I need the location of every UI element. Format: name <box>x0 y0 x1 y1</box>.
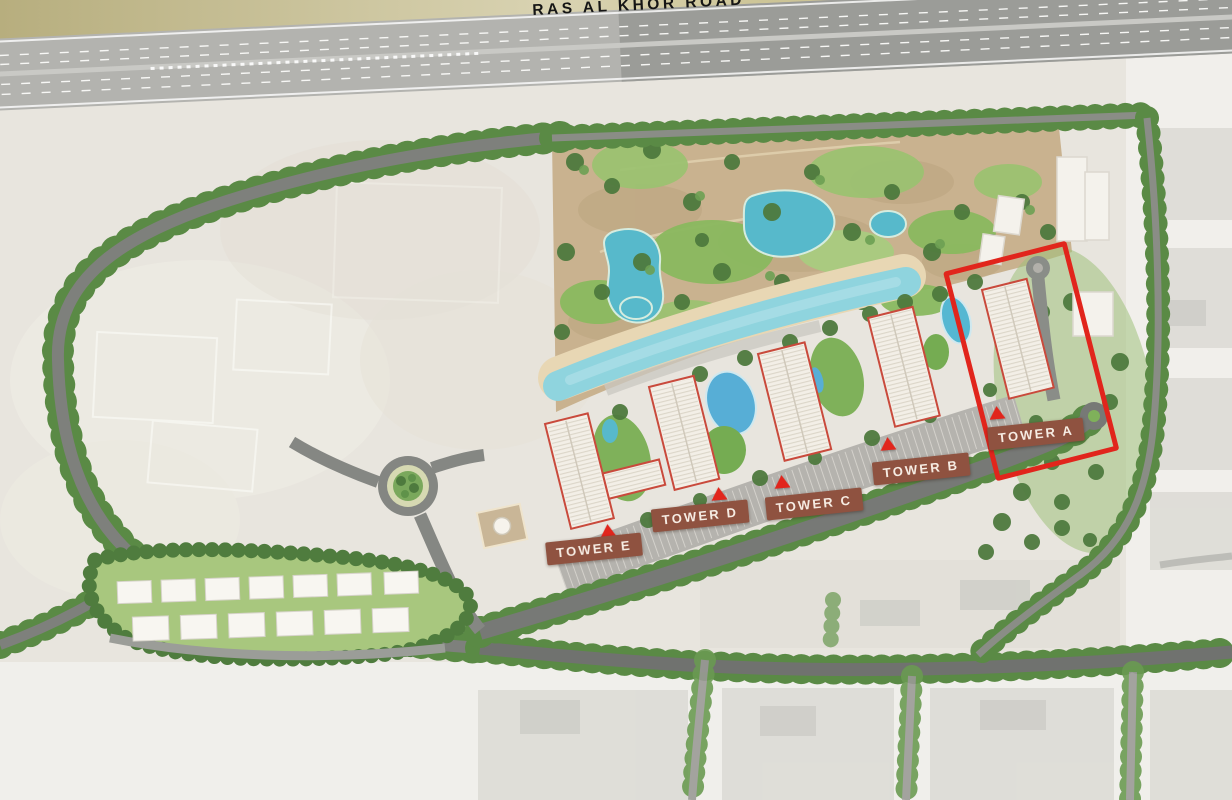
tower-c-marker[interactable] <box>773 474 790 488</box>
tower-b-marker[interactable] <box>879 436 896 450</box>
tower-d-marker[interactable] <box>710 486 727 500</box>
mosque <box>477 504 528 548</box>
roundabout <box>378 456 438 516</box>
tower-a-marker[interactable] <box>988 405 1005 419</box>
townhouse-cluster <box>89 550 470 659</box>
masterplan-screenshot: RAS AL KHOR ROAD TOWER A TOWER B TOWER C… <box>0 0 1232 800</box>
